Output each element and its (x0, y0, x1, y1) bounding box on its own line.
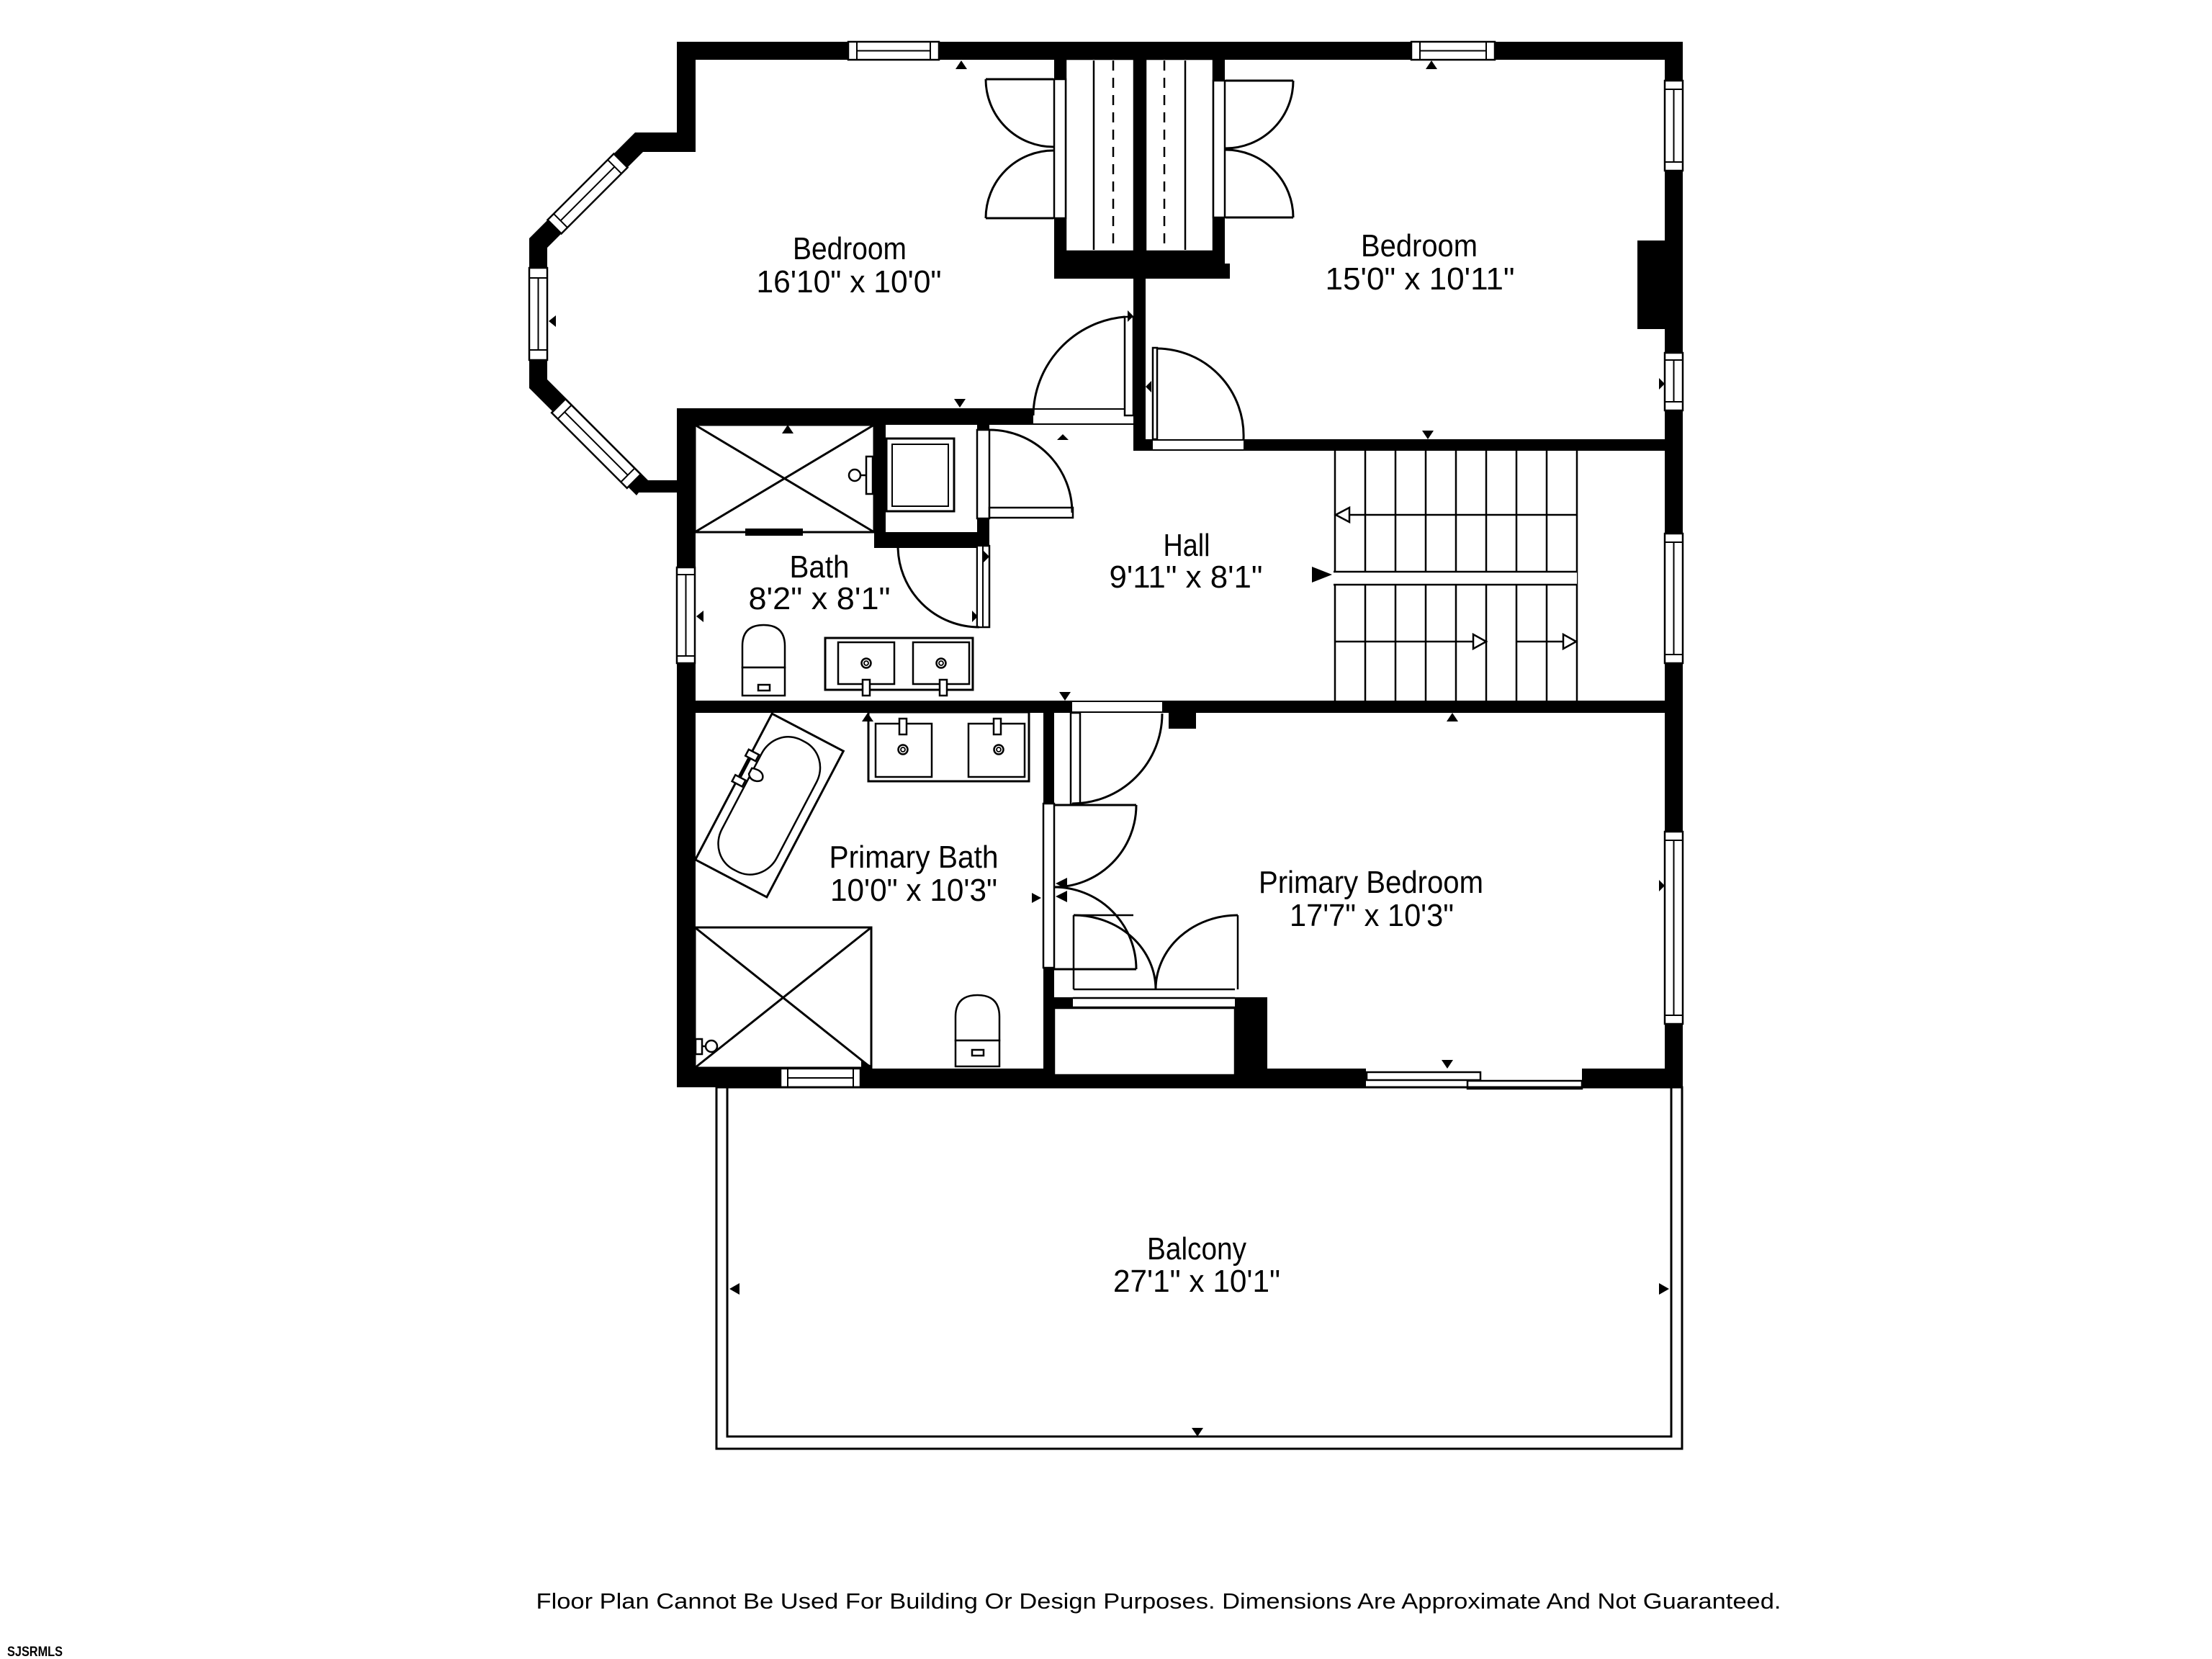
svg-text:Balcony: Balcony (1147, 1231, 1246, 1267)
svg-text:27'1" x 10'1": 27'1" x 10'1" (1113, 1264, 1280, 1299)
svg-text:SJSRMLS: SJSRMLS (7, 1645, 63, 1659)
svg-text:17'7" x 10'3": 17'7" x 10'3" (1290, 898, 1454, 933)
svg-text:Bedroom: Bedroom (793, 231, 907, 266)
svg-text:Floor Plan Cannot Be Used For: Floor Plan Cannot Be Used For Building O… (536, 1588, 1781, 1614)
svg-text:Hall: Hall (1164, 528, 1210, 563)
svg-text:9'11" x 8'1": 9'11" x 8'1" (1110, 559, 1263, 595)
svg-text:15'0" x 10'11": 15'0" x 10'11" (1326, 261, 1515, 297)
svg-text:16'10" x 10'0": 16'10" x 10'0" (757, 264, 942, 300)
svg-text:10'0" x 10'3": 10'0" x 10'3" (830, 873, 997, 908)
svg-text:Bedroom: Bedroom (1361, 228, 1478, 264)
svg-text:Primary Bedroom: Primary Bedroom (1259, 865, 1483, 900)
svg-text:Bath: Bath (790, 549, 850, 585)
svg-text:Primary Bath: Primary Bath (829, 840, 999, 875)
svg-text:8'2" x 8'1": 8'2" x 8'1" (749, 581, 891, 616)
